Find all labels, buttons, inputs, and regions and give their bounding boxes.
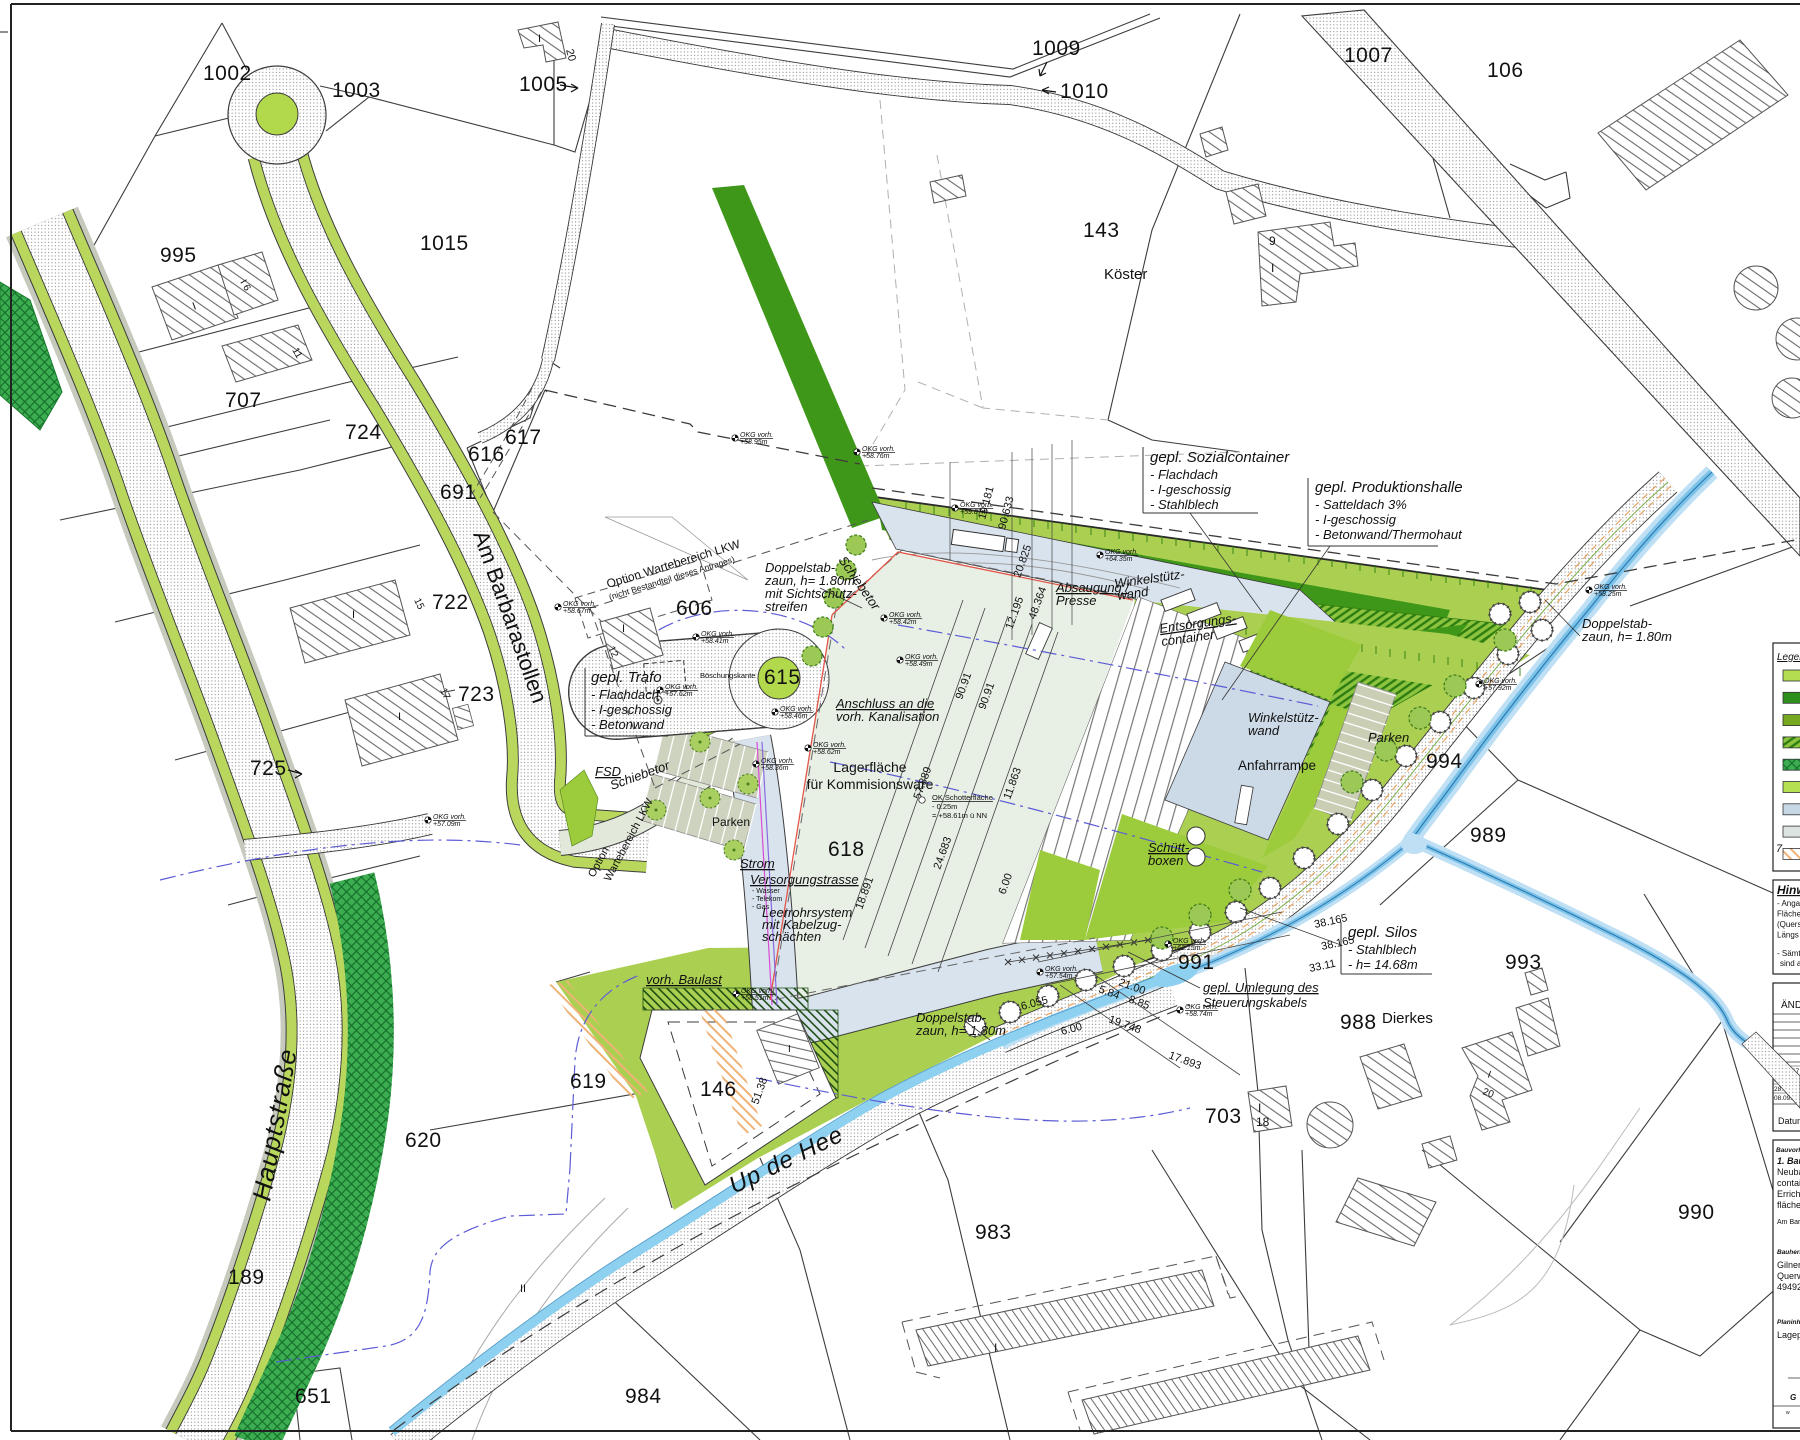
svg-text:+58.49m: +58.49m: [905, 661, 933, 668]
svg-text:I: I: [622, 623, 625, 635]
svg-text:+58.74m: +58.74m: [1185, 1011, 1213, 1018]
svg-text:- Stahlblech: - Stahlblech: [1150, 497, 1219, 512]
svg-text:I: I: [1271, 261, 1274, 275]
svg-text:1002: 1002: [203, 62, 252, 85]
svg-text:1015: 1015: [420, 232, 469, 255]
svg-text:wand: wand: [1248, 723, 1280, 738]
svg-text:OKG vorh.: OKG vorh.: [563, 601, 596, 608]
svg-text:- Telekom: - Telekom: [752, 896, 782, 903]
svg-text:143: 143: [1083, 219, 1120, 242]
svg-text:619: 619: [570, 1070, 607, 1093]
svg-text:Gilner: Gilner: [1777, 1260, 1800, 1270]
svg-text:gepl. Silos: gepl. Silos: [1348, 924, 1418, 941]
svg-text:1007: 1007: [1344, 44, 1393, 67]
svg-text:651: 651: [295, 1385, 332, 1408]
svg-text:+57.62m: +57.62m: [665, 691, 693, 698]
svg-text:- I-geschossig: - I-geschossig: [591, 702, 673, 717]
svg-text:ÄNDER: ÄNDER: [1781, 999, 1800, 1011]
svg-text:- Angab: - Angab: [1777, 899, 1800, 908]
svg-text:+59.87m: +59.87m: [960, 509, 988, 516]
svg-text:606: 606: [676, 597, 713, 620]
svg-text:993: 993: [1505, 951, 1542, 974]
svg-text:OKG vorh.: OKG vorh.: [740, 432, 773, 439]
svg-text:OKG vorh.: OKG vorh.: [1045, 966, 1078, 973]
svg-text:I: I: [538, 33, 541, 45]
svg-text:- Flachdach: - Flachdach: [591, 687, 659, 702]
svg-text:Errichtu: Errichtu: [1777, 1189, 1800, 1199]
svg-text:Parken: Parken: [712, 815, 750, 829]
svg-text:Bauvorh: Bauvorh: [1776, 1147, 1800, 1154]
svg-text:OKG vorh.: OKG vorh.: [741, 988, 774, 995]
svg-text:gepl. Produktionshalle: gepl. Produktionshalle: [1315, 479, 1463, 496]
svg-text:sind au: sind au: [1780, 959, 1800, 968]
svg-text:+58.42m: +58.42m: [889, 619, 917, 626]
svg-text:- 0.25m: - 0.25m: [932, 802, 957, 811]
svg-text:49492: 49492: [1777, 1282, 1800, 1292]
svg-text:723: 723: [458, 683, 495, 706]
svg-text:990: 990: [1678, 1201, 1715, 1224]
svg-text:+58.36m: +58.36m: [761, 765, 789, 772]
svg-text:- h= 14.68m: - h= 14.68m: [1348, 957, 1418, 972]
svg-text:615: 615: [764, 666, 801, 689]
svg-text:+57.92m: +57.92m: [1484, 685, 1512, 692]
svg-text:Versorgungstrasse: Versorgungstrasse: [750, 872, 859, 887]
svg-text:983: 983: [975, 1221, 1012, 1244]
svg-text:Querw: Querw: [1777, 1271, 1800, 1281]
svg-text:- Sämtl: - Sämtl: [1777, 949, 1800, 958]
svg-text:991: 991: [1178, 951, 1215, 974]
svg-text:gepl. Trafo: gepl. Trafo: [591, 669, 662, 686]
svg-text:vorh. Kanalisation: vorh. Kanalisation: [836, 709, 939, 724]
svg-text:1003: 1003: [332, 79, 381, 102]
svg-text:Parken: Parken: [1368, 730, 1409, 745]
svg-text:contain: contain: [1777, 1178, 1800, 1188]
svg-text:OKG vorh.: OKG vorh.: [761, 758, 794, 765]
svg-text:995: 995: [160, 244, 197, 267]
svg-text:Böschungskante: Böschungskante: [700, 671, 755, 680]
svg-text:OKG vorh.: OKG vorh.: [889, 612, 922, 619]
svg-text:+64.35m: +64.35m: [1105, 556, 1133, 563]
svg-text:vorh. Baulast: vorh. Baulast: [646, 972, 723, 987]
svg-text:Lagerfläche: Lagerfläche: [833, 759, 906, 775]
svg-text:I: I: [352, 609, 355, 621]
svg-text:OKG vorh.: OKG vorh.: [905, 654, 938, 661]
svg-text:989: 989: [1470, 824, 1507, 847]
svg-text:- Wasser: - Wasser: [752, 888, 780, 895]
svg-text:I: I: [398, 711, 401, 723]
svg-text:Datum: Datum: [1778, 1116, 1800, 1126]
svg-text:984: 984: [625, 1385, 662, 1408]
svg-text:OKG vorh.: OKG vorh.: [813, 742, 846, 749]
svg-text:Steuerungskabels: Steuerungskabels: [1203, 995, 1308, 1010]
svg-text:flächen: flächen: [1777, 1200, 1800, 1210]
svg-text:Fläche: Fläche: [1777, 910, 1800, 919]
svg-text:+57.09m: +57.09m: [433, 821, 461, 828]
svg-text:994: 994: [1426, 750, 1463, 773]
svg-text:OK Schotterfläche: OK Schotterfläche: [932, 793, 993, 802]
svg-text:zaun, h= 1.80m: zaun, h= 1.80m: [915, 1023, 1006, 1038]
svg-text:106: 106: [1487, 59, 1524, 82]
svg-text:boxen: boxen: [1148, 853, 1183, 868]
svg-text:gepl. Sozialcontainer: gepl. Sozialcontainer: [1150, 449, 1290, 466]
svg-text:- Flachdach: - Flachdach: [1150, 467, 1218, 482]
svg-text:I: I: [994, 1341, 997, 1355]
svg-text:schächten: schächten: [762, 929, 821, 944]
svg-text:707: 707: [225, 389, 262, 412]
svg-text:18: 18: [1256, 1115, 1270, 1129]
svg-text:722: 722: [432, 591, 469, 614]
svg-text:w: w: [1786, 1410, 1790, 1416]
svg-text:OKG vorh.: OKG vorh.: [1105, 549, 1138, 556]
svg-text:7: 7: [1776, 843, 1783, 855]
svg-text:OKG vorh.: OKG vorh.: [1484, 678, 1517, 685]
svg-text:988: 988: [1340, 1011, 1377, 1034]
svg-text:Presse: Presse: [1056, 593, 1096, 608]
svg-text:OKG vorh.: OKG vorh.: [433, 814, 466, 821]
svg-text:703: 703: [1205, 1105, 1242, 1128]
svg-text:1009: 1009: [1032, 37, 1081, 60]
svg-text:Am Barb: Am Barb: [1777, 1219, 1800, 1226]
svg-text:1. Bau: 1. Bau: [1777, 1156, 1800, 1166]
svg-text:I: I: [1258, 1101, 1261, 1115]
svg-text:OKG vorh.: OKG vorh.: [1173, 938, 1206, 945]
svg-text:- I-geschossig: - I-geschossig: [1150, 482, 1232, 497]
svg-text:1010: 1010: [1060, 80, 1109, 103]
svg-text:+58.51m: +58.51m: [741, 995, 769, 1002]
svg-text:146: 146: [700, 1078, 737, 1101]
svg-text:OKG vorh.: OKG vorh.: [862, 446, 895, 453]
svg-text:617: 617: [505, 426, 542, 449]
svg-text:- Satteldach 3%: - Satteldach 3%: [1315, 497, 1407, 512]
svg-text:II: II: [520, 1283, 526, 1295]
svg-text:OKG vorh.: OKG vorh.: [1594, 584, 1627, 591]
svg-text:Anfahrrampe: Anfahrrampe: [1238, 758, 1316, 773]
svg-text:(Quers: (Quers: [1777, 920, 1800, 929]
svg-text:- I-geschossig: - I-geschossig: [1315, 512, 1397, 527]
svg-text:- Betonwand/Thermohaut: - Betonwand/Thermohaut: [1315, 527, 1463, 542]
svg-text:Lagepl: Lagepl: [1777, 1330, 1800, 1340]
svg-text:OKG vorh.: OKG vorh.: [665, 684, 698, 691]
svg-text:I: I: [788, 1044, 791, 1055]
svg-text:189: 189: [228, 1266, 265, 1289]
svg-text:streifen: streifen: [765, 599, 808, 614]
svg-text:zaun, h= 1.80m: zaun, h= 1.80m: [1581, 629, 1672, 644]
svg-text:Bauherr: Bauherr: [1777, 1249, 1800, 1256]
svg-text:Legende: Legende: [1777, 652, 1800, 663]
svg-text:Dierkes: Dierkes: [1382, 1010, 1433, 1027]
svg-text:691: 691: [440, 481, 477, 504]
svg-text:Strom: Strom: [740, 856, 775, 871]
svg-text:725: 725: [250, 757, 287, 780]
svg-text:Planinh: Planinh: [1777, 1319, 1800, 1326]
svg-text:- Stahlblech: - Stahlblech: [1348, 942, 1417, 957]
svg-text:OKG vorh.: OKG vorh.: [780, 706, 813, 713]
svg-text:OKG vorh.: OKG vorh.: [701, 631, 734, 638]
svg-text:- Betonwand: - Betonwand: [591, 717, 665, 732]
svg-text:+58.41m: +58.41m: [701, 638, 729, 645]
svg-text:Köster: Köster: [1104, 266, 1147, 283]
svg-text:Hinwei: Hinwei: [1777, 883, 1800, 897]
svg-text:+58.62m: +58.62m: [813, 749, 841, 756]
svg-text:gepl. Umlegung des: gepl. Umlegung des: [1203, 980, 1319, 995]
svg-text:616: 616: [468, 443, 505, 466]
svg-text:für Kommisionsware: für Kommisionsware: [807, 776, 934, 792]
svg-text:+58.95m: +58.95m: [740, 439, 768, 446]
svg-text:Neubau: Neubau: [1777, 1167, 1800, 1177]
svg-text:618: 618: [828, 838, 865, 861]
svg-text:+58.46m: +58.46m: [780, 713, 808, 720]
svg-text:Längs: Längs: [1777, 931, 1799, 940]
svg-text:+57.54m: +57.54m: [1045, 973, 1073, 980]
svg-text:= +58.61m ü NN: = +58.61m ü NN: [932, 811, 987, 820]
svg-text:OKG vorh.: OKG vorh.: [960, 502, 993, 509]
svg-text:9: 9: [1269, 234, 1276, 248]
svg-text:G: G: [1790, 1393, 1796, 1402]
svg-text:+58.67m: +58.67m: [563, 608, 591, 615]
svg-text:620: 620: [405, 1129, 442, 1152]
svg-text:724: 724: [345, 421, 382, 444]
svg-text:+58.76m: +58.76m: [862, 453, 890, 460]
svg-text:+58.25m: +58.25m: [1594, 591, 1622, 598]
